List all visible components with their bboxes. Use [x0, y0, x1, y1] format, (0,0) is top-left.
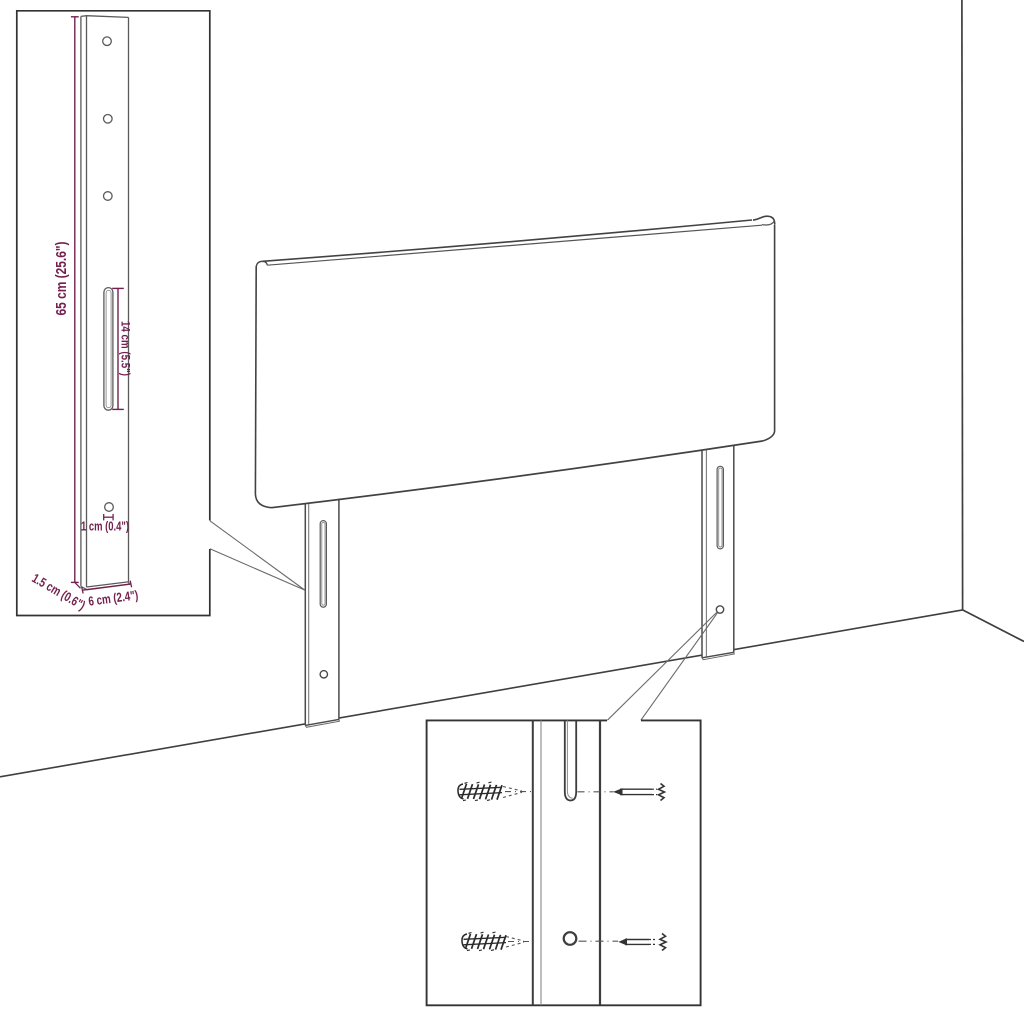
svg-text:14 cm (5.5"): 14 cm (5.5") [119, 321, 131, 376]
svg-text:1 cm (0.4"): 1 cm (0.4") [81, 519, 129, 534]
svg-text:65 cm (25.6"): 65 cm (25.6") [54, 241, 70, 315]
